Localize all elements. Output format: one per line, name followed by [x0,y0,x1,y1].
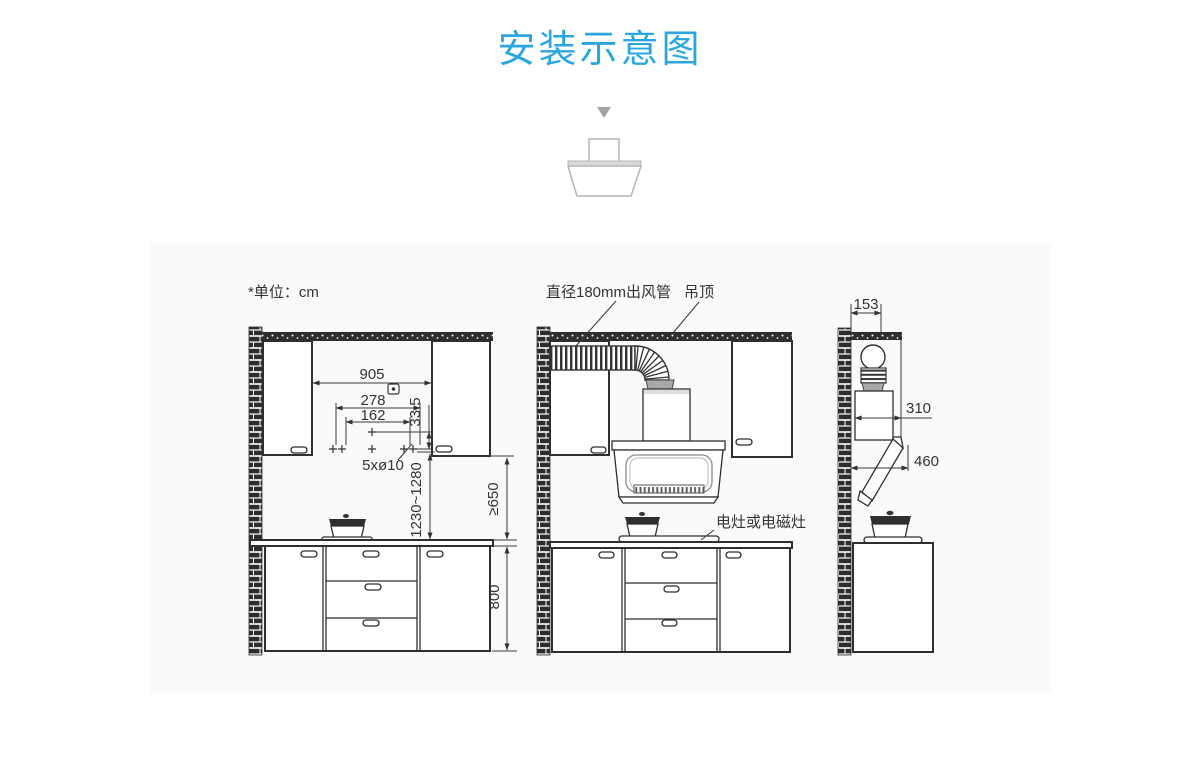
page-title: 安装示意图 [0,18,1200,73]
ceiling [550,332,792,341]
dim-33-5-label: 33.5 [407,397,424,426]
wall [249,327,262,655]
hood-thumbnail-icon [560,100,650,200]
wall [838,328,851,655]
range-hood [612,389,725,503]
unit-note: *单位：cm [248,284,319,301]
ceiling [851,332,902,340]
side-view: 153 310 [838,296,939,655]
dim-460-label: 460 [914,453,939,470]
cabinet-handle [291,447,307,453]
base-cabinet [265,546,490,651]
pot [625,512,660,537]
upper-cabinet-right [432,341,490,456]
hood-outline-icon [568,139,641,196]
dim-310-label: 310 [906,400,931,417]
dim-153: 153 [851,296,881,332]
cabinet-handle [436,446,452,452]
duct-view: 直径180mm出风管 吊顶 电灶或电磁灶 [537,284,806,655]
ceiling-label-group: 吊顶 [673,284,714,333]
stove-label: 电灶或电磁灶 [716,514,806,531]
pot [322,514,372,542]
base-cabinet [853,543,933,652]
diagram-svg: *单位：cm 905 [150,243,1051,693]
duct-flange [862,383,884,391]
hood-vent [634,485,704,493]
base-cabinet [552,548,790,652]
diagram-panel: *单位：cm 905 [150,243,1051,693]
ceiling-label: 吊顶 [684,284,714,301]
upper-cabinet-right [732,341,792,457]
hood-chimney-side [855,391,893,440]
dim-1230-1280: 1230~1280 [408,452,435,539]
holes-label: 5xø10 [362,457,404,474]
hood-cap [612,441,725,450]
duct-flange [646,380,674,389]
down-arrow-icon [597,107,611,118]
dim-650-label: ≥650 [485,482,502,515]
installation-diagram-page: 安装示意图 [0,0,1200,774]
dim-162: 162 [346,407,410,445]
dim-905: 905 [313,366,431,383]
ceiling [262,332,493,341]
upper-cabinet-left [263,341,312,455]
dim-905-label: 905 [359,366,384,383]
dim-650: ≥650 [437,456,514,539]
duct-side [861,345,886,391]
duct-label: 直径180mm出风管 [546,284,671,301]
pot [864,511,922,543]
dim-162-label: 162 [360,407,385,424]
wall [537,327,550,655]
front-view: 905 278 162 [249,327,517,655]
screw-icon [388,384,399,394]
dim-1230-1280-label: 1230~1280 [408,462,425,538]
hood-chimney [643,389,690,441]
dim-153-label: 153 [853,296,878,313]
hood-body-side [858,437,903,506]
